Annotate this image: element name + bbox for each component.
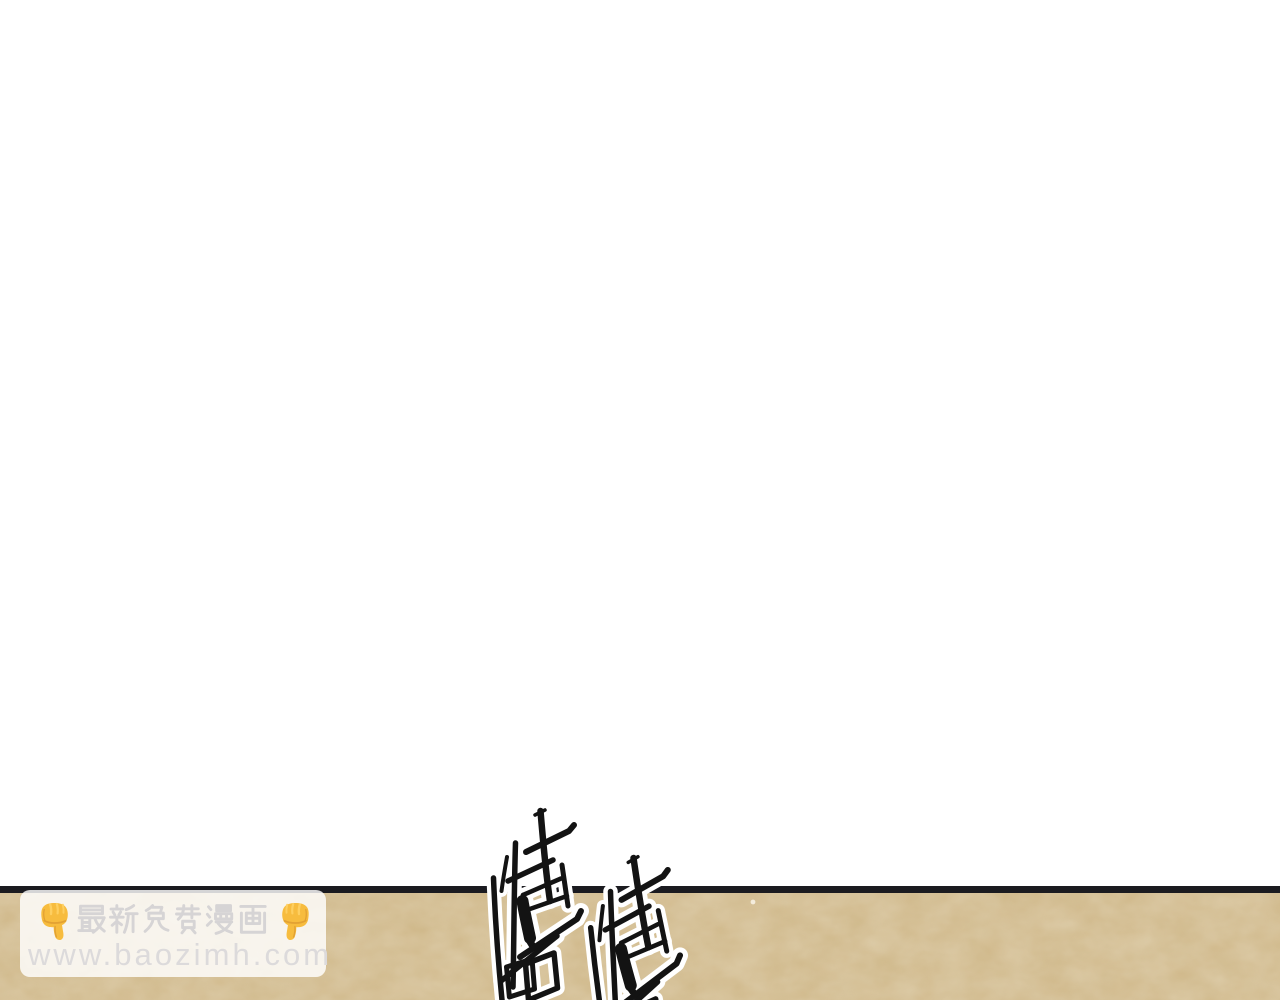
svg-text:www.baozimh.com: www.baozimh.com: [27, 937, 332, 972]
